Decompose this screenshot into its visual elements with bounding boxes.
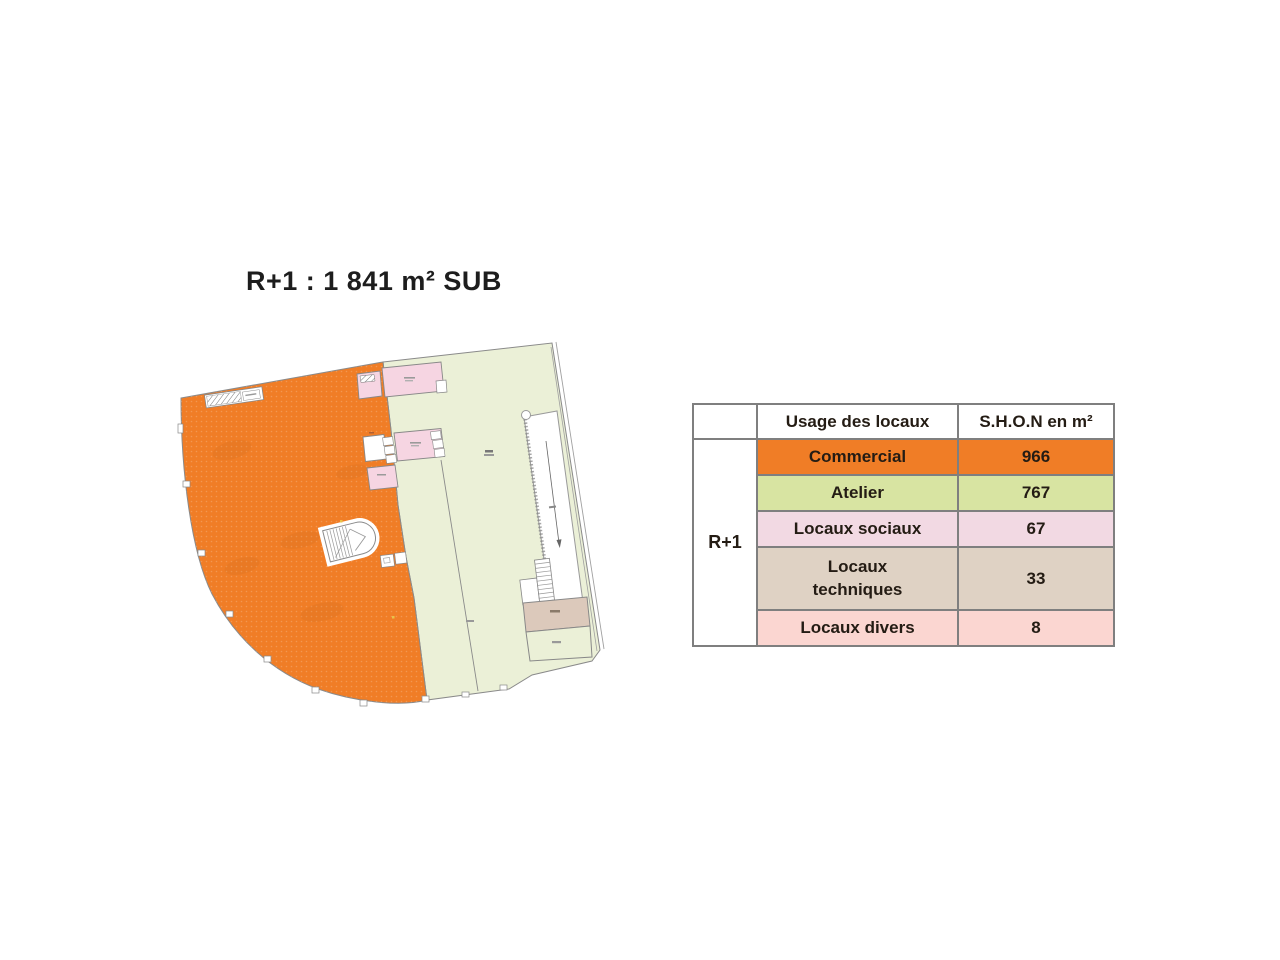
page-title: R+1 : 1 841 m² SUB xyxy=(246,266,502,297)
row-commercial-value: 966 xyxy=(958,439,1114,475)
lower-green-room xyxy=(526,626,592,661)
row-techniques-value: 33 xyxy=(958,547,1114,610)
row-divers-value: 8 xyxy=(958,610,1114,646)
row-commercial-label: Commercial xyxy=(757,439,958,475)
row-group-label: R+1 xyxy=(693,439,757,646)
row-techniques-label: Locaux techniques xyxy=(757,547,958,610)
row-sociaux-label: Locaux sociaux xyxy=(757,511,958,547)
row-atelier-label: Atelier xyxy=(757,475,958,511)
surface-table: Usage des locaux S.H.O.N en m² R+1 Comme… xyxy=(692,403,1115,647)
col-header-shon: S.H.O.N en m² xyxy=(958,404,1114,439)
col-header-usage: Usage des locaux xyxy=(757,404,958,439)
row-atelier-value: 767 xyxy=(958,475,1114,511)
row-sociaux-value: 67 xyxy=(958,511,1114,547)
corridor-hook xyxy=(522,411,531,420)
table-corner-blank xyxy=(693,404,757,439)
row-techniques-label-text: Locaux techniques xyxy=(799,556,917,600)
row-divers-label: Locaux divers xyxy=(757,610,958,646)
